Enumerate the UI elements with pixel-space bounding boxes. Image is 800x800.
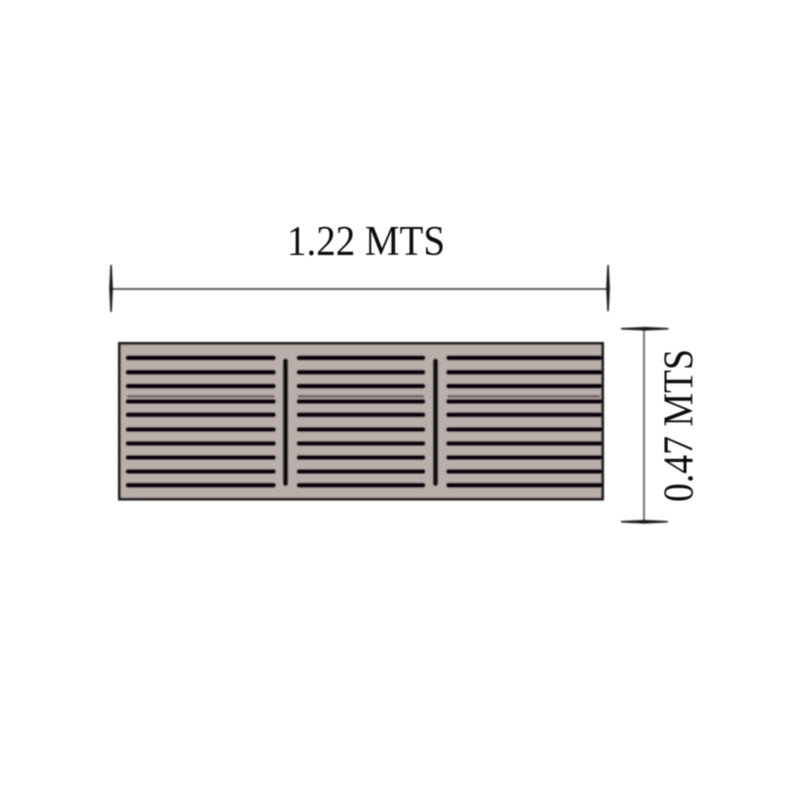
svg-text:0.47 MTS: 0.47 MTS <box>657 349 703 502</box>
svg-text:1.22 MTS: 1.22 MTS <box>287 219 445 265</box>
